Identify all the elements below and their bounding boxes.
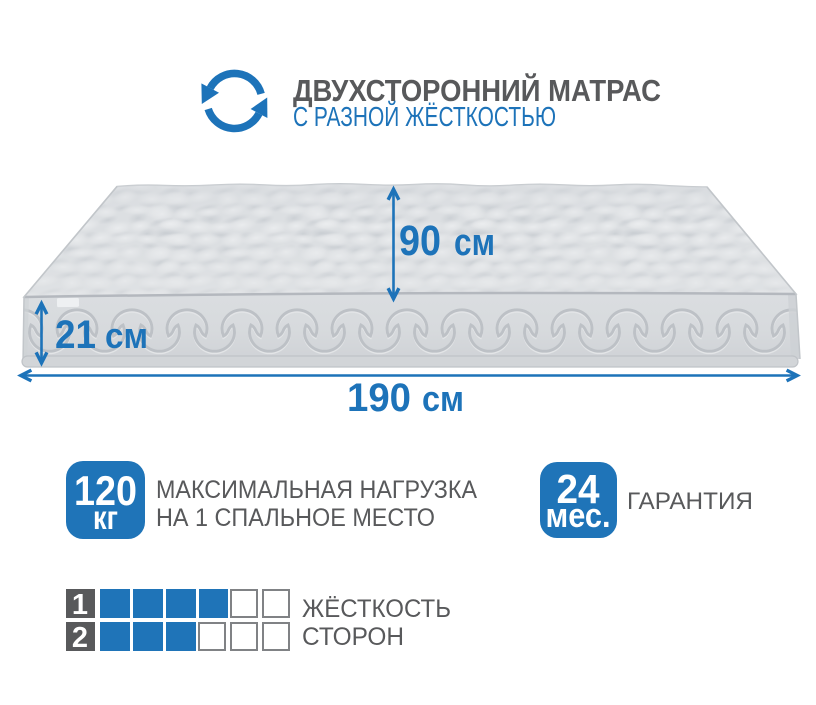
svg-text:190: 190 (347, 376, 411, 420)
svg-text:СТОРОН: СТОРОН (302, 623, 404, 651)
svg-text:С РАЗНОЙ ЖЁСТКОСТЬЮ: С РАЗНОЙ ЖЁСТКОСТЬЮ (293, 101, 556, 132)
svg-text:1: 1 (72, 589, 88, 621)
svg-text:21: 21 (55, 313, 96, 357)
svg-text:см: см (454, 222, 495, 264)
svg-text:90: 90 (399, 217, 441, 265)
svg-text:2: 2 (72, 622, 88, 654)
svg-text:ЖЁСТКОСТЬ: ЖЁСТКОСТЬ (302, 595, 451, 623)
svg-text:см: см (422, 378, 464, 419)
svg-text:см: см (105, 315, 148, 356)
svg-text:НА 1 СПАЛЬНОЕ МЕСТО: НА 1 СПАЛЬНОЕ МЕСТО (156, 504, 435, 532)
svg-text:кг: кг (93, 499, 118, 536)
svg-text:МАКСИМАЛЬНАЯ НАГРУЗКА: МАКСИМАЛЬНАЯ НАГРУЗКА (156, 476, 477, 504)
svg-text:мес.: мес. (546, 497, 611, 535)
svg-text:ГАРАНТИЯ: ГАРАНТИЯ (627, 488, 753, 515)
